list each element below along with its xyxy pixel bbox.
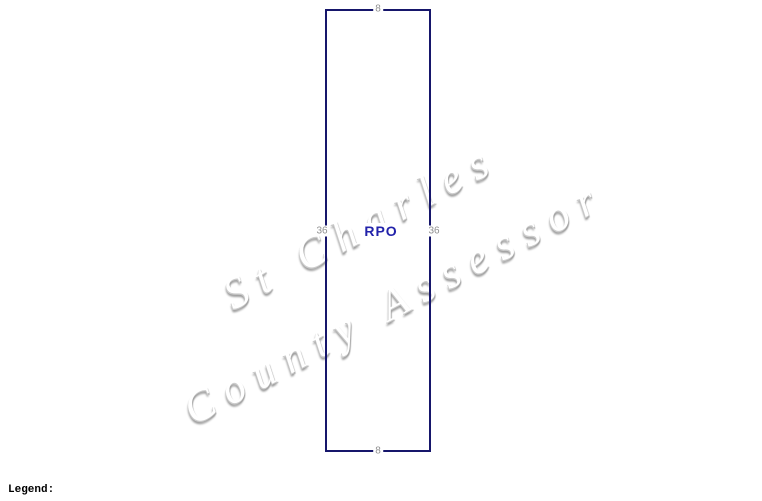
assessor-sketch-page: St Charles County Assessor 8 8 36 36 RPO… <box>0 0 762 501</box>
legend-title: Legend: <box>8 484 200 497</box>
dimension-label-top: 8 <box>373 4 383 15</box>
dimension-label-right: 36 <box>426 226 441 237</box>
building-code-label: RPO <box>362 223 399 239</box>
dimension-label-bottom: 8 <box>373 446 383 457</box>
dimension-label-left: 36 <box>314 226 329 237</box>
legend: Legend: RPO:OPEN PORCH W ROOF <box>8 458 200 501</box>
